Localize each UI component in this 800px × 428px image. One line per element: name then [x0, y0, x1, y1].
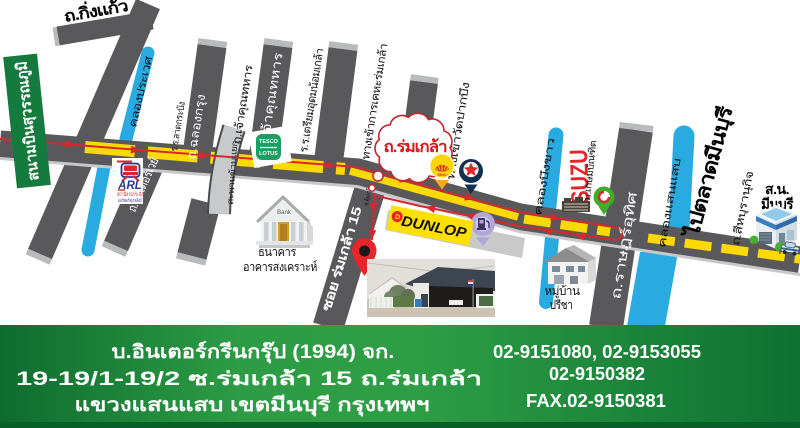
- svg-text:02-9150382: 02-9150382: [549, 364, 645, 384]
- svg-text:LOTUS: LOTUS: [259, 151, 278, 157]
- svg-text:ปรีชา: ปรีชา: [550, 298, 573, 312]
- svg-text:หมู่บ้าน: หมู่บ้าน: [545, 284, 580, 299]
- svg-text:TESCO: TESCO: [259, 139, 279, 145]
- svg-text:แขวงแสนแสบ เขตมีนบุรี กรุงเทพฯ: แขวงแสนแสบ เขตมีนบุรี กรุงเทพฯ: [75, 394, 430, 417]
- svg-text:ส.น.: ส.น.: [765, 181, 789, 197]
- svg-text:Bank: Bank: [277, 210, 292, 216]
- svg-text:บ.อินเตอร์กรีนกรุ๊ป (1994) จก.: บ.อินเตอร์กรีนกรุ๊ป (1994) จก.: [112, 341, 395, 364]
- svg-text:สถานีลาดกระบัง: สถานีลาดกระบัง: [117, 191, 143, 198]
- svg-text:แอร์พอร์ตเรลลิงก์: แอร์พอร์ตเรลลิงก์: [118, 197, 142, 204]
- svg-text:Shell: Shell: [437, 173, 446, 177]
- svg-text:19-19/1-19/2 ซ.ร่มเกล้า 15 ถ.ร: 19-19/1-19/2 ซ.ร่มเกล้า 15 ถ.ร่มเกล้า: [16, 368, 482, 390]
- svg-text:02-9151080, 02-9153055: 02-9151080, 02-9153055: [493, 342, 701, 362]
- svg-text:อาคารสงเคราะห์: อาคารสงเคราะห์: [243, 260, 317, 274]
- svg-text:FAX.02-9150381: FAX.02-9150381: [526, 390, 666, 411]
- svg-text:ถ.ร่มเกล้า: ถ.ร่มเกล้า: [384, 138, 447, 156]
